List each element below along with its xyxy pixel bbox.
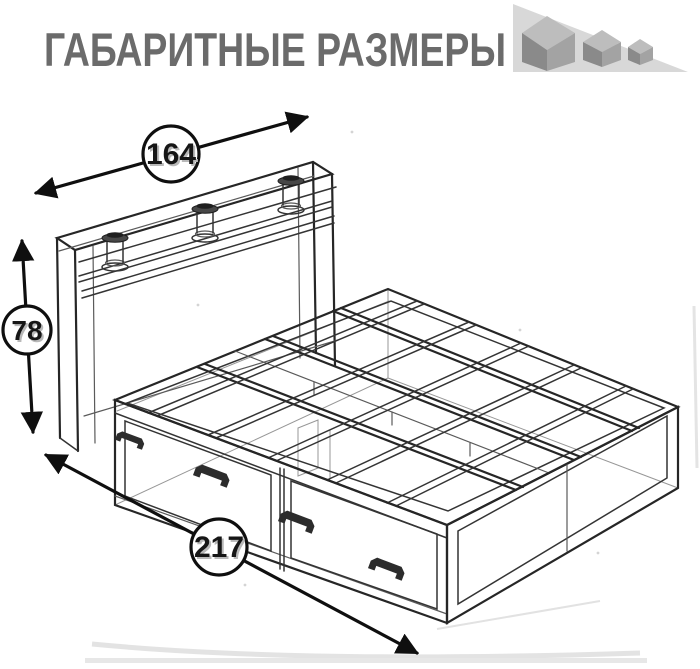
dimensions-figure: ГАБАРИТНЫЕ РАЗМЕРЫ [0, 0, 700, 669]
headboard [57, 162, 338, 451]
long-rails [197, 308, 639, 490]
length-value: 217 [194, 531, 244, 564]
height-value: 78 [11, 315, 42, 346]
foot-panel [447, 407, 678, 623]
drawer-side [115, 400, 447, 623]
drawer-handle-icon [193, 463, 231, 488]
bed-drawing [57, 131, 697, 663]
dimension-length: 217 [46, 455, 417, 653]
drawer-handle-icon [115, 430, 146, 450]
dimension-height: 78 [3, 241, 51, 432]
dimension-width: 164 [36, 117, 307, 193]
figure-canvas: ГАБАРИТНЫЕ РАЗМЕРЫ [0, 0, 700, 669]
page-title: ГАБАРИТНЫЕ РАЗМЕРЫ [44, 23, 506, 76]
bed-base-top [115, 289, 678, 525]
candle-holder-right [278, 175, 304, 214]
drawer-handle-icon [368, 556, 406, 581]
width-value: 164 [146, 138, 196, 171]
decreasing-cubes-icon [513, 4, 688, 72]
logo-cube-small [628, 39, 653, 65]
